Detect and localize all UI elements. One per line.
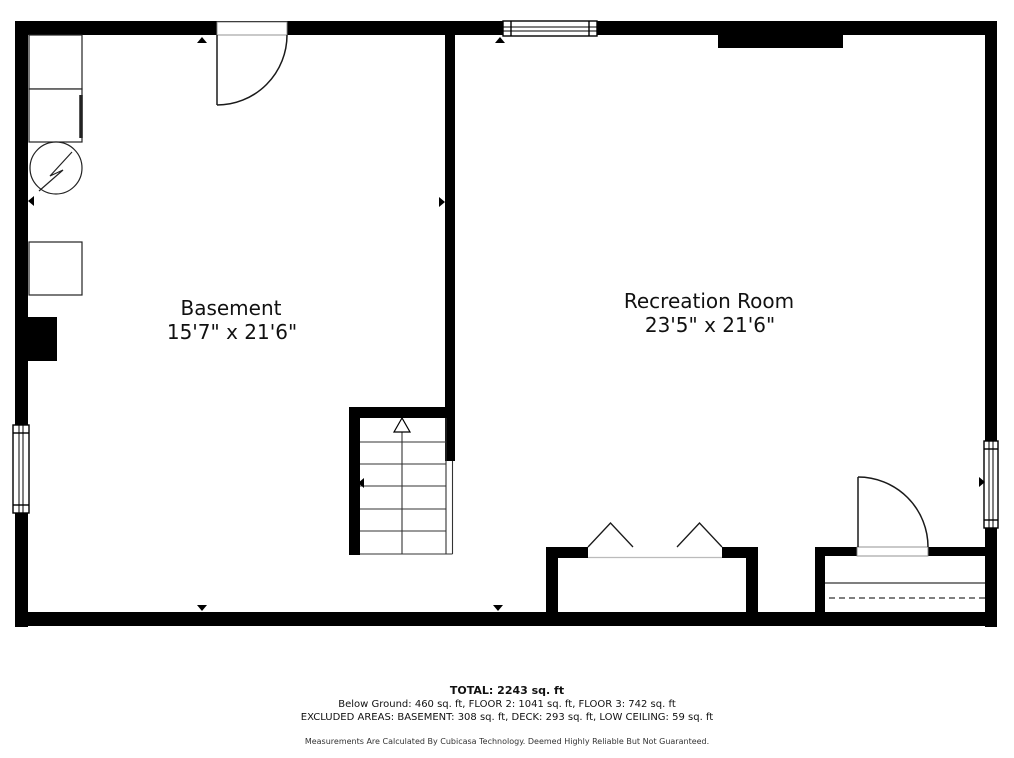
room-name-recreation: Recreation Room	[624, 289, 794, 313]
wall-alcove-top-left	[546, 547, 588, 558]
appliance-box-2	[29, 89, 82, 142]
measure-arrow-left-icon	[28, 196, 34, 206]
fixtures	[29, 35, 82, 295]
appliance-box-3	[29, 242, 82, 295]
footer-total: TOTAL: 2243 sq. ft	[450, 684, 564, 697]
footer: TOTAL: 2243 sq. ft Below Ground: 460 sq.…	[301, 684, 713, 746]
wall-porch-top-left	[825, 547, 857, 556]
wall-right	[985, 21, 997, 627]
double-door-icon	[588, 523, 722, 558]
measure-arrow-down-icon	[197, 605, 207, 611]
footer-excluded: EXCLUDED AREAS: BASEMENT: 308 sq. ft, DE…	[301, 712, 713, 723]
wall-interior-divider	[445, 35, 455, 461]
window-right	[984, 441, 998, 528]
appliance-box-1	[29, 35, 82, 89]
footer-floors: Below Ground: 460 sq. ft, FLOOR 2: 1041 …	[338, 699, 676, 710]
window-left	[13, 425, 29, 513]
wall-porch-top-right	[928, 547, 985, 556]
wall-stair-left	[349, 407, 360, 555]
chimney-icon	[28, 317, 57, 361]
stair-up-arrow-icon	[394, 418, 410, 432]
wall-stair-top	[349, 407, 455, 418]
wall-alcove-left	[546, 547, 558, 626]
wall-porch-left	[815, 547, 825, 626]
door-swing-icon	[858, 477, 928, 547]
wall-alcove-top-right	[722, 547, 758, 558]
porch-steps	[825, 583, 985, 598]
staircase-icon	[360, 418, 453, 554]
wall-top-right-bump	[718, 35, 843, 48]
room-name-basement: Basement	[180, 296, 281, 320]
measure-arrow-down-icon	[493, 605, 503, 611]
wall-bottom	[15, 612, 997, 626]
door-swing-icon	[217, 35, 287, 105]
room-dims-recreation: 23'5" x 21'6"	[645, 313, 775, 337]
measure-arrow-up-icon	[495, 37, 505, 43]
measure-arrow-right-icon	[439, 197, 445, 207]
room-dims-basement: 15'7" x 21'6"	[167, 320, 297, 344]
door-top-left	[217, 22, 287, 105]
wall-left	[15, 21, 28, 627]
room-labels: Basement 15'7" x 21'6" Recreation Room 2…	[167, 289, 794, 344]
footer-disclaimer: Measurements Are Calculated By Cubicasa …	[305, 737, 709, 746]
windows	[13, 21, 998, 528]
wall-alcove-right	[746, 547, 758, 626]
water-heater-icon	[30, 142, 82, 194]
floor-plan-page: Basement 15'7" x 21'6" Recreation Room 2…	[0, 0, 1014, 758]
window-top	[503, 21, 597, 36]
floor-plan-canvas: Basement 15'7" x 21'6" Recreation Room 2…	[0, 0, 1014, 758]
measure-arrow-up-icon	[197, 37, 207, 43]
walls	[15, 21, 997, 627]
doors	[217, 22, 928, 558]
door-bottom-right	[857, 477, 928, 556]
